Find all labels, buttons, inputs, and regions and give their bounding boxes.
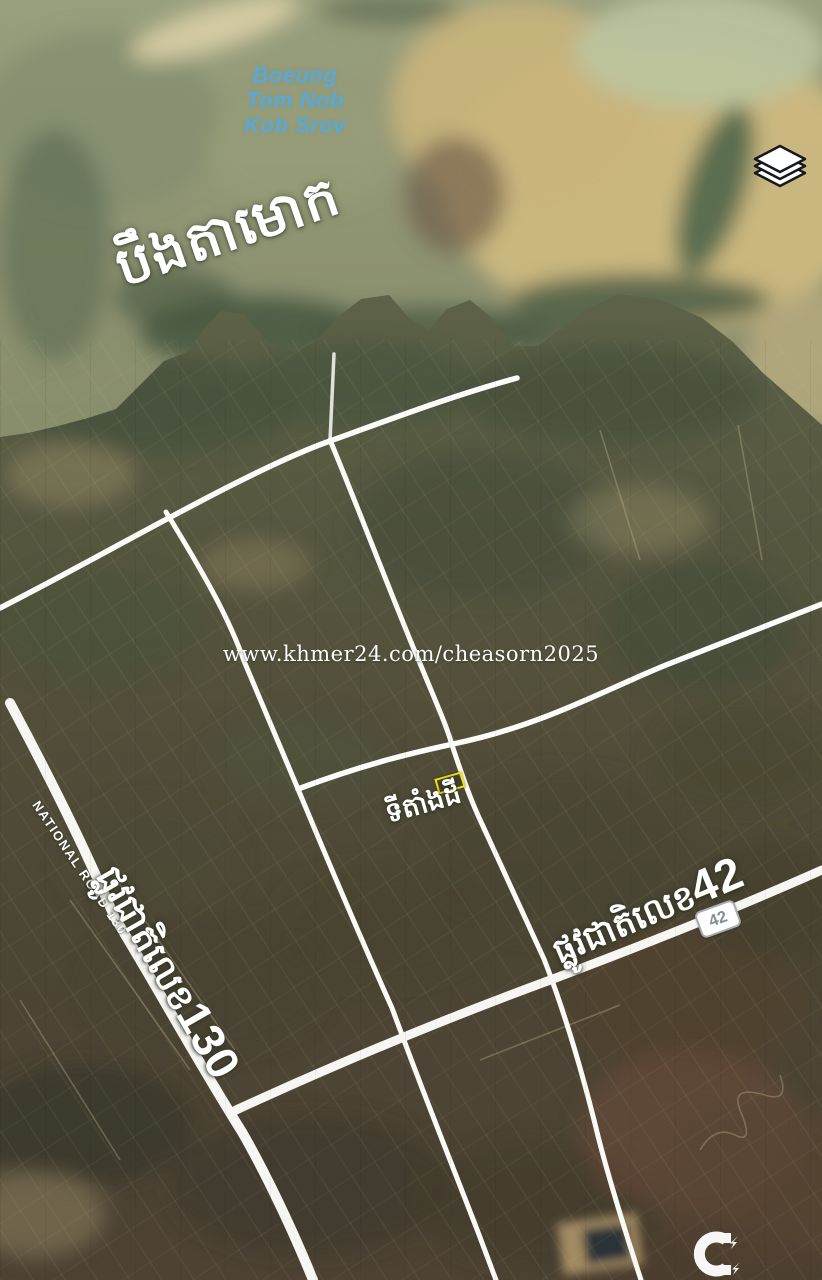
water-label-line3: Kob Srov	[244, 113, 346, 138]
layers-button[interactable]	[752, 143, 808, 191]
magnet-sparkle-icon	[688, 1230, 746, 1278]
map-canvas	[0, 0, 822, 1280]
route-42-badge-number: 42	[706, 907, 730, 931]
watermark-text: www.khmer24.com/cheasorn2025	[223, 642, 599, 666]
magnet-logo	[688, 1230, 746, 1278]
water-label-line2: Tom Nob	[244, 88, 346, 113]
layers-icon	[752, 143, 808, 191]
water-label-line1: Boeung	[244, 63, 346, 88]
water-area-label: Boeung Tom Nob Kob Srov	[244, 63, 346, 138]
satellite-map[interactable]: Boeung Tom Nob Kob Srov បឹងតាមោក www.khm…	[0, 0, 822, 1280]
